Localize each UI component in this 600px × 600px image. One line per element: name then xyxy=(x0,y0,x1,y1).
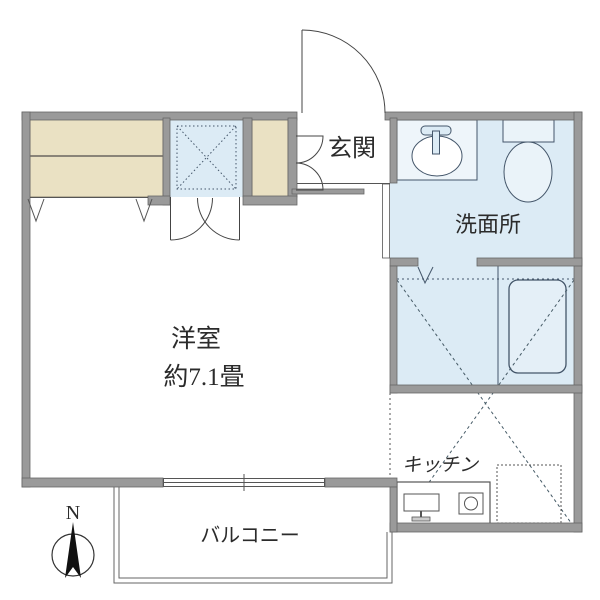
wall-entrance-washroom xyxy=(390,118,397,183)
wall-stub-shoebox xyxy=(288,118,297,197)
kitchen-sink-icon xyxy=(404,494,439,511)
toilet-bowl-icon xyxy=(504,142,552,202)
western-room-label: 洋室 xyxy=(171,325,221,353)
wall-washroom-bath-left xyxy=(390,258,418,266)
wall-right xyxy=(574,112,582,532)
entrance-label: 玄関 xyxy=(328,135,376,162)
shoe-cabinet-door-top-icon xyxy=(296,136,323,163)
floor-plan: N 玄関 洗面所 洋室 約7.1畳 キッチン バルコニー xyxy=(0,0,600,600)
wall-bath-left xyxy=(390,266,397,393)
balcony-label: バルコニー xyxy=(200,525,300,547)
wall-bottom-left xyxy=(22,478,163,487)
compass-north-label: N xyxy=(66,502,80,524)
shoe-cabinet xyxy=(252,118,288,197)
wall-bath-kitchen xyxy=(390,385,582,393)
wall-balcony-stub xyxy=(390,487,397,532)
toilet-tank-icon xyxy=(503,120,554,142)
wall-stub-washer xyxy=(243,118,252,197)
wall-washroom-bath-right xyxy=(477,258,582,266)
entrance-door-arc-icon xyxy=(302,30,385,113)
western-room-size-label: 約7.1畳 xyxy=(163,363,244,391)
kitchen-label: キッチン xyxy=(402,455,479,476)
wall-kitchen-bottom xyxy=(390,523,582,532)
closet xyxy=(30,118,163,197)
sliding-window-icon xyxy=(163,474,325,491)
room-fills xyxy=(30,112,582,390)
kitchen-faucet-base-icon xyxy=(412,517,430,521)
closet-door-right-arc-icon xyxy=(198,198,240,240)
compass: N xyxy=(52,502,94,578)
wall-stub-closet xyxy=(163,118,170,205)
washroom-sliding-door-icon xyxy=(383,184,390,258)
wall-left xyxy=(22,112,30,487)
sink-faucet-stem-icon xyxy=(433,131,440,154)
wall-bottom-mid xyxy=(325,478,397,487)
wall-top-right xyxy=(385,112,582,120)
washroom-label: 洗面所 xyxy=(455,212,521,237)
wall-below-shoebox xyxy=(243,196,297,205)
shoe-cabinet-door-bottom-icon xyxy=(296,163,323,190)
refrigerator-space-icon xyxy=(497,465,561,523)
closet-door-left-arc-icon xyxy=(171,198,213,240)
stove-burner-icon xyxy=(465,497,478,510)
floor-plan-drawing: N 玄関 洗面所 洋室 約7.1畳 キッチン バルコニー xyxy=(0,0,600,600)
wall-top-left xyxy=(22,112,297,120)
